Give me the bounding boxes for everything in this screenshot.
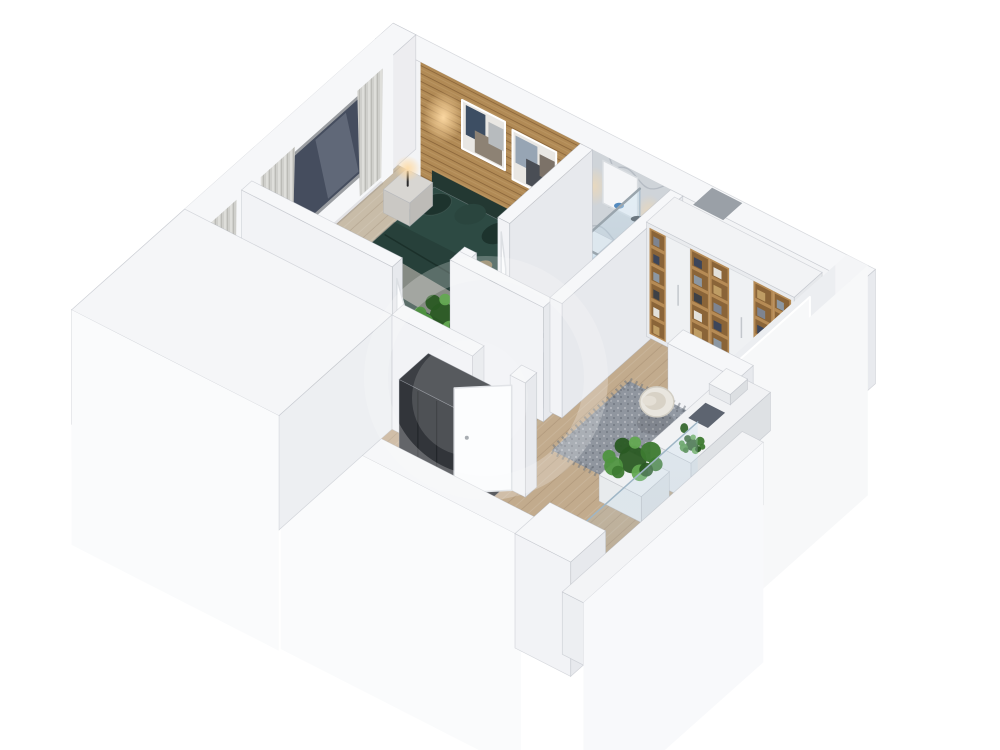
slat-wall-glow-left <box>423 91 463 143</box>
bedroom-plant-leaf <box>439 294 451 306</box>
bathroom-living-wall-front <box>550 298 562 419</box>
watermark-core <box>412 340 528 456</box>
armchair-cushion <box>642 396 656 406</box>
planter-bush-leaf <box>629 437 641 449</box>
balcony-parapet-front <box>562 592 583 665</box>
apartment-3d-floorplan <box>0 0 1000 750</box>
planter-bush-leaf <box>612 466 625 479</box>
planter-bush-leaf <box>615 438 631 454</box>
nightstand-lamp-left-glow <box>395 156 421 182</box>
planter-bush-leaf <box>603 450 616 463</box>
floorplan-image <box>0 0 1000 750</box>
